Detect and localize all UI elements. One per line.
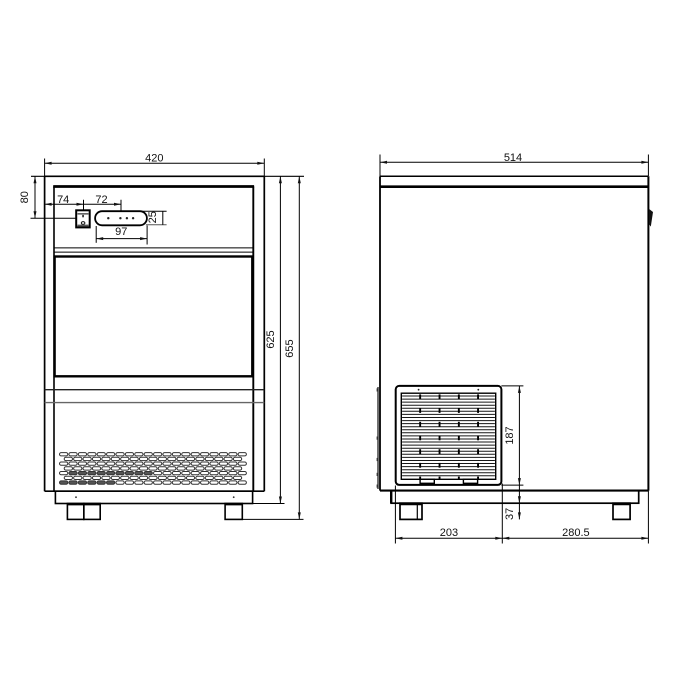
- svg-text:514: 514: [504, 152, 522, 164]
- svg-text:655: 655: [284, 339, 296, 357]
- svg-text:72: 72: [95, 194, 107, 206]
- svg-text:25: 25: [147, 211, 159, 223]
- svg-text:74: 74: [57, 194, 69, 206]
- svg-text:420: 420: [145, 153, 163, 165]
- svg-text:203: 203: [440, 527, 458, 539]
- svg-text:97: 97: [115, 226, 127, 238]
- svg-text:187: 187: [504, 426, 516, 444]
- svg-text:37: 37: [504, 508, 516, 520]
- svg-text:280.5: 280.5: [562, 527, 590, 539]
- svg-text:625: 625: [265, 330, 277, 348]
- svg-text:80: 80: [19, 191, 31, 203]
